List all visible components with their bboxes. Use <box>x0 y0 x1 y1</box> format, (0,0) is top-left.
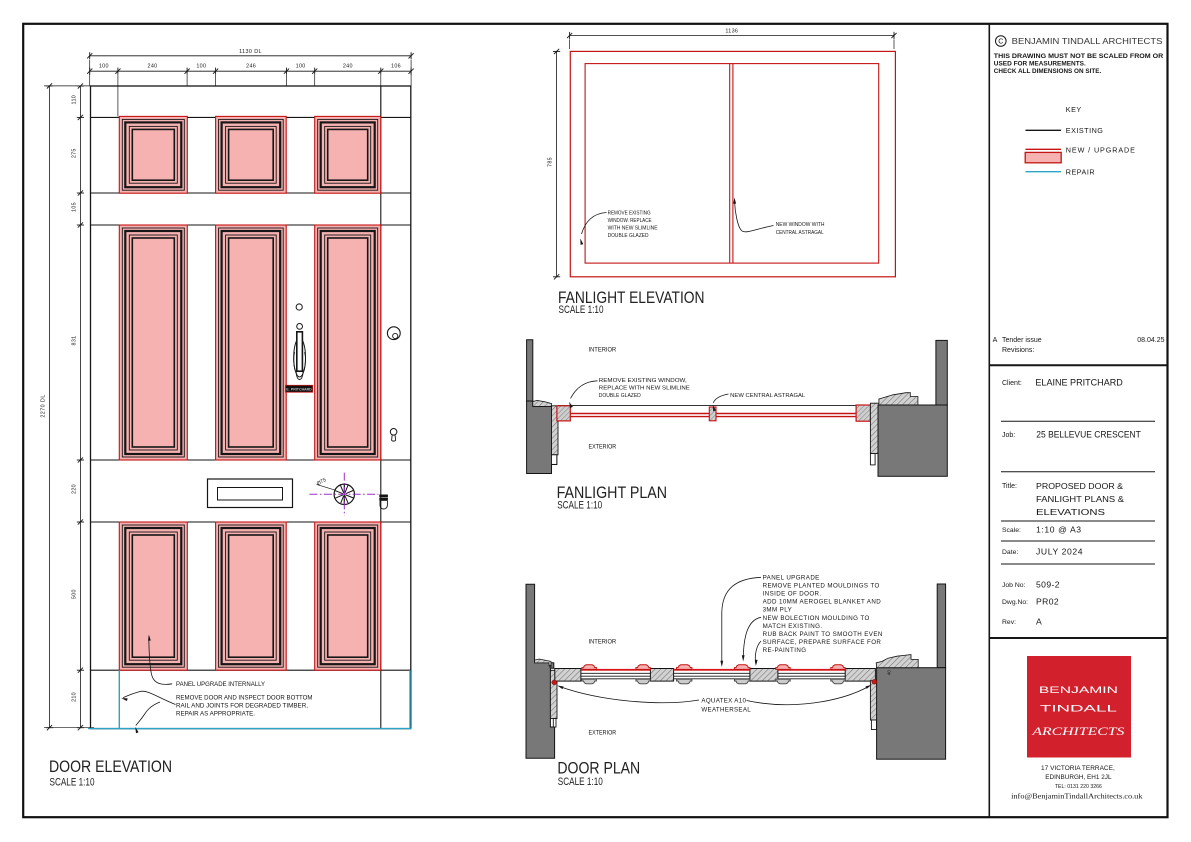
svg-text:240: 240 <box>343 64 353 70</box>
svg-text:785: 785 <box>548 157 554 167</box>
svg-text:100: 100 <box>99 64 109 70</box>
svg-text:40: 40 <box>887 670 892 676</box>
svg-text:ELAINE PRITCHARD: ELAINE PRITCHARD <box>1035 378 1122 388</box>
svg-text:SCALE 1:10: SCALE 1:10 <box>50 777 95 789</box>
svg-text:REMOVE EXISTING: REMOVE EXISTING <box>608 211 651 217</box>
svg-text:REMOVE EXISTING WINDOW,: REMOVE EXISTING WINDOW, <box>599 378 687 384</box>
svg-text:REPLACE WITH NEW SLIMLINE: REPLACE WITH NEW SLIMLINE <box>599 386 690 392</box>
svg-text:USED FOR MEASUREMENTS.: USED FOR MEASUREMENTS. <box>994 61 1086 68</box>
svg-text:MATCH EXISTING.: MATCH EXISTING. <box>763 623 823 630</box>
svg-text:INTERIOR: INTERIOR <box>589 639 617 646</box>
svg-text:275: 275 <box>71 148 77 158</box>
svg-text:110: 110 <box>71 95 77 105</box>
svg-text:Scale:: Scale: <box>1002 527 1021 534</box>
svg-text:NEW WINDOW WITH: NEW WINDOW WITH <box>776 222 825 228</box>
svg-text:CENTRAL ASTRAGAL: CENTRAL ASTRAGAL <box>776 230 825 236</box>
svg-text:246: 246 <box>246 64 256 70</box>
svg-text:NEW BOLECTION MOULDING TO: NEW BOLECTION MOULDING TO <box>763 615 870 622</box>
svg-text:1:10 @ A3: 1:10 @ A3 <box>1036 524 1082 534</box>
svg-text:SCALE 1:10: SCALE 1:10 <box>557 500 602 512</box>
svg-text:105: 105 <box>71 202 77 212</box>
svg-text:TINDALL: TINDALL <box>1040 704 1117 714</box>
svg-text:REMOVE PLANTED MOULDINGS TO: REMOVE PLANTED MOULDINGS TO <box>763 583 880 590</box>
svg-text:PROPOSED DOOR &: PROPOSED DOOR & <box>1036 481 1123 491</box>
svg-text:PANEL UPGRADE INTERNALLY: PANEL UPGRADE INTERNALLY <box>176 681 266 688</box>
svg-text:PR02: PR02 <box>1036 596 1059 606</box>
svg-text:REMOVE DOOR AND INSPECT DOOR B: REMOVE DOOR AND INSPECT DOOR BOTTOM <box>176 695 313 702</box>
svg-text:CHECK ALL DIMENSIONS ON SITE.: CHECK ALL DIMENSIONS ON SITE. <box>994 68 1102 75</box>
svg-text:EDINBURGH, EH1 2JL: EDINBURGH, EH1 2JL <box>1045 774 1111 781</box>
svg-text:1130 DL: 1130 DL <box>239 49 262 55</box>
svg-text:1136: 1136 <box>725 29 738 35</box>
svg-text:Client:: Client: <box>1002 380 1022 387</box>
svg-text:Revisions:: Revisions: <box>1002 347 1034 354</box>
svg-text:Job No:: Job No: <box>1002 582 1026 589</box>
svg-text:DOOR PLAN: DOOR PLAN <box>557 759 640 777</box>
svg-text:17 VICTORIA TERRACE,: 17 VICTORIA TERRACE, <box>1041 765 1115 772</box>
svg-text:220: 220 <box>71 484 77 494</box>
svg-text:106: 106 <box>391 64 401 70</box>
svg-text:WEATHERSEAL: WEATHERSEAL <box>701 707 751 714</box>
svg-text:info@BenjaminTindallArchitects: info@BenjaminTindallArchitects.co.uk <box>1011 792 1142 801</box>
svg-text:NEW / UPGRADE: NEW / UPGRADE <box>1066 145 1136 154</box>
svg-text:EXTERIOR: EXTERIOR <box>589 443 617 450</box>
svg-text:ELEVATIONS: ELEVATIONS <box>1036 507 1105 517</box>
svg-text:EXTERIOR: EXTERIOR <box>589 730 617 737</box>
svg-text:TEL: 0131 220 3266: TEL: 0131 220 3266 <box>1055 784 1102 790</box>
svg-text:FANLIGHT PLANS &: FANLIGHT PLANS & <box>1036 494 1124 504</box>
svg-text:SCALE 1:10: SCALE 1:10 <box>558 776 603 788</box>
svg-text:ARCHITECTS: ARCHITECTS <box>1031 725 1125 738</box>
svg-text:Tender issue: Tender issue <box>1002 337 1042 344</box>
svg-text:240: 240 <box>148 64 158 70</box>
svg-text:PANEL UPGRADE: PANEL UPGRADE <box>763 575 820 582</box>
svg-text:JULY 2024: JULY 2024 <box>1036 547 1083 557</box>
svg-text:ADD 10MM AEROGEL BLANKET AND: ADD 10MM AEROGEL BLANKET AND <box>763 599 882 606</box>
svg-text:BENJAMIN: BENJAMIN <box>1039 685 1118 695</box>
svg-text:A: A <box>1036 616 1042 626</box>
svg-text:DOUBLE GLAZED: DOUBLE GLAZED <box>608 233 649 239</box>
svg-text:DOOR ELEVATION: DOOR ELEVATION <box>49 758 172 776</box>
svg-text:DOUBLE GLAZED: DOUBLE GLAZED <box>599 393 641 399</box>
svg-text:A: A <box>993 337 998 344</box>
svg-text:REPAIR: REPAIR <box>1066 168 1095 177</box>
svg-text:SURFACE, PREPARE SURFACE FOR: SURFACE, PREPARE SURFACE FOR <box>763 639 882 646</box>
svg-text:EXISTING: EXISTING <box>1066 126 1104 135</box>
svg-text:831: 831 <box>71 336 77 346</box>
svg-text:THIS DRAWING MUST NOT BE SCALE: THIS DRAWING MUST NOT BE SCALED FROM OR <box>994 53 1164 60</box>
svg-text:WITH NEW SLIMLINE: WITH NEW SLIMLINE <box>608 226 658 232</box>
svg-text:100: 100 <box>196 64 206 70</box>
svg-text:RUB BACK PAINT TO SMOOTH EVEN: RUB BACK PAINT TO SMOOTH EVEN <box>763 631 883 638</box>
svg-text:BENJAMIN TINDALL ARCHITECTS: BENJAMIN TINDALL ARCHITECTS <box>1012 37 1163 46</box>
svg-text:25 BELLEVUE CRESCENT: 25 BELLEVUE CRESCENT <box>1036 430 1141 440</box>
svg-text:210: 210 <box>71 692 77 702</box>
svg-text:REPAIR AS APPROPRIATE.: REPAIR AS APPROPRIATE. <box>176 711 255 718</box>
svg-text:Rev:: Rev: <box>1002 619 1016 626</box>
svg-text:Title:: Title: <box>1002 483 1017 490</box>
svg-text:NEW CENTRAL ASTRAGAL: NEW CENTRAL ASTRAGAL <box>730 393 806 399</box>
svg-text:C: C <box>998 37 1003 46</box>
svg-text:SCALE 1:10: SCALE 1:10 <box>559 304 604 316</box>
svg-text:Date:: Date: <box>1002 549 1018 556</box>
svg-text:INSIDE OF DOOR.: INSIDE OF DOOR. <box>763 591 822 598</box>
svg-text:RE-PAINTING: RE-PAINTING <box>763 647 807 654</box>
svg-text:KEY: KEY <box>1066 105 1082 114</box>
svg-text:Job:: Job: <box>1002 432 1015 439</box>
svg-text:INTERIOR: INTERIOR <box>589 347 617 354</box>
svg-text:2270 DL: 2270 DL <box>41 394 47 417</box>
svg-text:AQUATEX A10: AQUATEX A10 <box>701 698 746 705</box>
svg-text:Dwg.No:: Dwg.No: <box>1002 599 1028 606</box>
svg-text:08.04.25: 08.04.25 <box>1137 337 1164 344</box>
svg-text:E. PRITCHARD: E. PRITCHARD <box>286 388 312 392</box>
svg-text:509-2: 509-2 <box>1036 579 1060 589</box>
svg-text:500: 500 <box>71 589 77 599</box>
svg-text:WINDOW. REPLACE: WINDOW. REPLACE <box>608 218 652 224</box>
svg-text:100: 100 <box>296 64 306 70</box>
svg-text:RAIL AND JOINTS FOR DEGRADED T: RAIL AND JOINTS FOR DEGRADED TIMBER, <box>176 703 308 710</box>
svg-text:3MM PLY: 3MM PLY <box>763 607 793 614</box>
